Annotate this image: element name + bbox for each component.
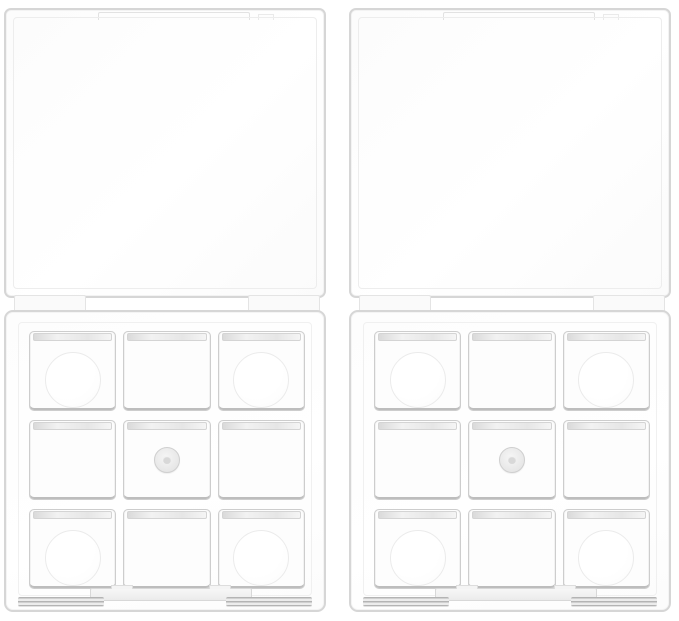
palette-base (4, 310, 326, 612)
front-groove-right-icon (226, 597, 312, 606)
magnet-dot-icon (154, 447, 180, 473)
pan-circle-impression (233, 352, 289, 408)
pan-circle-impression (390, 530, 446, 586)
latch-tab-right (209, 585, 231, 589)
latch-tab-right (554, 585, 576, 589)
pan-slot (218, 509, 305, 589)
pan-circle-impression (233, 530, 289, 586)
pan-slot (563, 331, 650, 411)
pan-slot (468, 509, 555, 589)
pan-slot (29, 331, 116, 411)
pan-slot (123, 509, 210, 589)
pan-slot (563, 509, 650, 589)
pan-slot (468, 420, 555, 500)
pan-slot (123, 331, 210, 411)
pan-grid (374, 331, 650, 589)
palette-left (1, 0, 333, 621)
pan-slot (468, 331, 555, 411)
pan-slot (374, 420, 461, 500)
product-photo (0, 0, 679, 621)
pan-slot (563, 420, 650, 500)
pan-slot (29, 509, 116, 589)
front-groove-left-icon (363, 597, 449, 606)
front-groove-left-icon (18, 597, 104, 606)
magnet-dot-icon (499, 447, 525, 473)
pan-slot (374, 331, 461, 411)
pan-circle-impression (390, 352, 446, 408)
pan-circle-impression (578, 352, 634, 408)
latch-tab-left (111, 585, 133, 589)
pan-slot (123, 420, 210, 500)
lid-inner-edge (358, 17, 662, 289)
latch-tab-left (456, 585, 478, 589)
pan-slot (374, 509, 461, 589)
palette-lid (349, 8, 671, 298)
front-groove-right-icon (571, 597, 657, 606)
palette-right (346, 0, 678, 621)
palette-base (349, 310, 671, 612)
pan-grid (29, 331, 305, 589)
pan-circle-impression (45, 352, 101, 408)
pan-circle-impression (45, 530, 101, 586)
pan-circle-impression (578, 530, 634, 586)
pan-slot (218, 331, 305, 411)
palette-lid (4, 8, 326, 298)
lid-inner-edge (13, 17, 317, 289)
pan-slot (218, 420, 305, 500)
pan-slot (29, 420, 116, 500)
